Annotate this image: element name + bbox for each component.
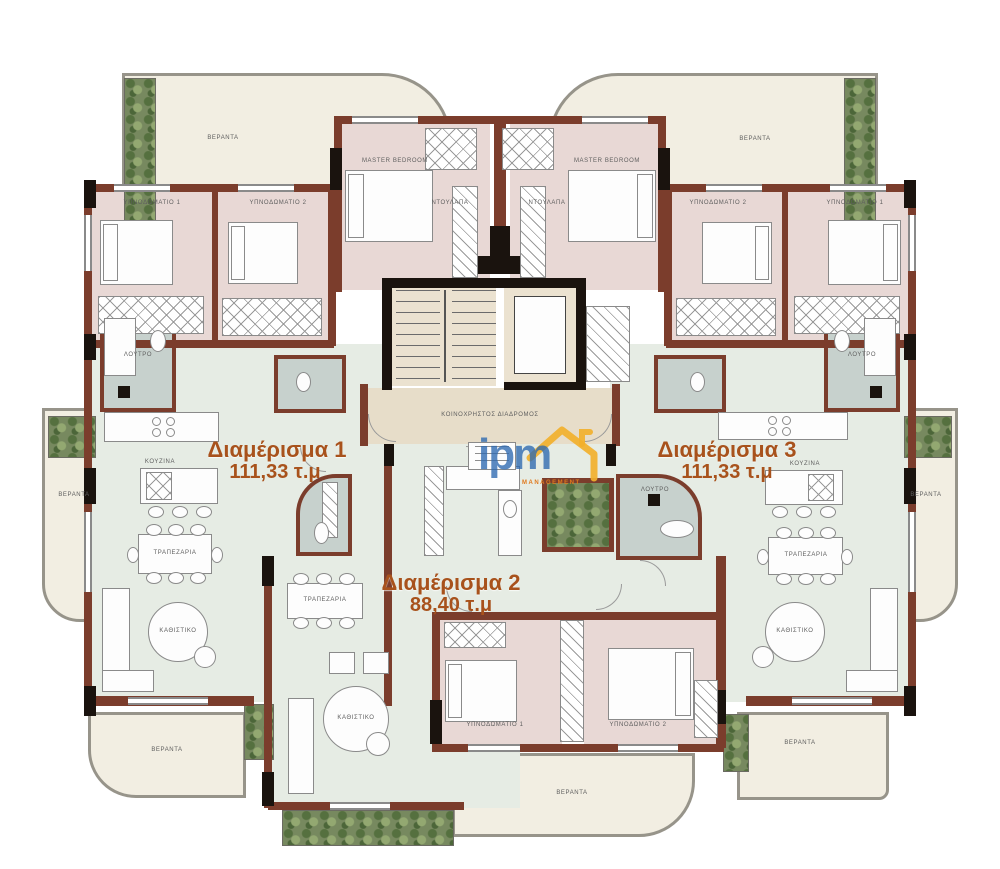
- column: [904, 334, 916, 360]
- room-label-sitting-apt3: ΚΑΘΙΣΤΙΚΟ: [765, 628, 825, 634]
- chair: [776, 573, 792, 585]
- room-label-balcony-left: ΒΕΡΑΝΤΑ: [34, 492, 114, 498]
- chair: [168, 524, 184, 536]
- coffee-table-small: [752, 646, 774, 668]
- room-label-bedroom2-apt1: ΥΠΝΟΔΩΜΑΤΙΟ 2: [228, 200, 328, 206]
- window: [582, 116, 648, 124]
- chair: [757, 549, 769, 565]
- column: [430, 700, 442, 744]
- window: [84, 215, 92, 271]
- apartment-2-name: Διαμέρισμα 2: [346, 570, 556, 596]
- stool: [148, 506, 164, 518]
- room-label-dining-apt2: ΤΡΑΠΕΖΑΡΙΑ: [295, 597, 355, 603]
- column: [904, 468, 916, 504]
- column: [384, 444, 394, 466]
- balcony-bottom-right: [737, 712, 889, 800]
- window: [618, 744, 678, 752]
- stool: [820, 506, 836, 518]
- chair: [798, 527, 814, 539]
- wall: [782, 190, 788, 340]
- core-wall: [382, 278, 392, 390]
- column: [262, 556, 274, 586]
- window: [706, 184, 762, 192]
- room-label-dining-apt3: ΤΡΑΠΕΖΑΡΙΑ: [776, 552, 836, 558]
- armchair: [329, 652, 355, 674]
- window: [830, 184, 886, 192]
- window: [908, 215, 916, 271]
- toilet: [296, 372, 311, 392]
- chair: [776, 527, 792, 539]
- chair: [146, 572, 162, 584]
- bed-pillow: [448, 664, 462, 718]
- room-label-bedroom1-apt3: ΥΠΝΟΔΩΜΑΤΙΟ 1: [805, 200, 905, 206]
- room-label-bath-apt2: ΛΟΥΤΡΟ: [625, 487, 685, 493]
- sink: [118, 386, 130, 398]
- stove-burner: [782, 427, 791, 436]
- ipm-logo: ipm MANAGEMENT: [478, 428, 608, 492]
- room-label-bath-apt1: ΛΟΥΤΡΟ: [108, 352, 168, 358]
- planter-bottom-strip: [282, 810, 454, 846]
- stool: [772, 506, 788, 518]
- room-label-sitting-apt1: ΚΑΘΙΣΤΙΚΟ: [148, 628, 208, 634]
- column: [330, 148, 342, 190]
- chair: [293, 573, 309, 585]
- room-label-bedroom2-apt3: ΥΠΝΟΔΩΜΑΤΙΟ 2: [668, 200, 768, 206]
- sofa: [846, 670, 898, 692]
- bed-pillow: [675, 652, 691, 716]
- logo-subtext: MANAGEMENT: [522, 480, 581, 486]
- stair-flight: [452, 290, 496, 382]
- chair: [146, 524, 162, 536]
- stove-burner: [768, 416, 777, 425]
- window: [468, 744, 520, 752]
- window: [330, 802, 390, 810]
- bed-pillow: [348, 174, 364, 238]
- stove-burner: [166, 417, 175, 426]
- window: [238, 184, 294, 192]
- bed-pillow: [103, 224, 118, 281]
- core-wall: [504, 382, 586, 390]
- room-label-dining-apt1: ΤΡΑΠΕΖΑΡΙΑ: [145, 550, 205, 556]
- wall: [664, 186, 672, 346]
- column: [84, 180, 96, 208]
- room-label-bedroom1-apt2: ΥΠΝΟΔΩΜΑΤΙΟ 1: [445, 722, 545, 728]
- toilet: [314, 522, 329, 544]
- bathtub: [104, 318, 136, 376]
- column: [904, 686, 916, 716]
- column: [262, 772, 274, 806]
- bed-pillow: [231, 226, 245, 280]
- room-label-balcony-bl: ΒΕΡΑΝΤΑ: [127, 747, 207, 753]
- bathtub: [660, 520, 694, 538]
- stove-burner: [152, 417, 161, 426]
- planter-mid-right: [723, 714, 749, 772]
- room-label-bath-apt3: ΛΟΥΤΡΟ: [832, 352, 892, 358]
- chair: [211, 547, 223, 563]
- sink: [648, 494, 660, 506]
- wall: [328, 186, 336, 346]
- stove-burner: [166, 428, 175, 437]
- room-label-bedroom2-apt2: ΥΠΝΟΔΩΜΑΤΙΟ 2: [588, 722, 688, 728]
- room-label-sitting-apt2: ΚΑΘΙΣΤΙΚΟ: [326, 715, 386, 721]
- column: [658, 148, 670, 190]
- room-label-balcony-br: ΒΕΡΑΝΤΑ: [760, 740, 840, 746]
- chair: [190, 524, 206, 536]
- window: [352, 116, 418, 124]
- logo-text: ipm: [478, 430, 550, 480]
- core-wall: [576, 278, 586, 390]
- sofa: [288, 698, 314, 794]
- toilet: [690, 372, 705, 392]
- bed-pillow: [755, 226, 769, 280]
- apartment-2-area: 88,40 τ.μ: [346, 594, 556, 617]
- toilet: [150, 330, 166, 352]
- coffee-table-small: [366, 732, 390, 756]
- floor-plan-canvas: Διαμέρισμα 1 111,33 τ.μ Διαμέρισμα 3 111…: [0, 0, 1000, 869]
- room-label-balcony-bc: ΒΕΡΑΝΤΑ: [532, 790, 612, 796]
- wall: [612, 384, 620, 446]
- apartment-1-area: 111,33 τ.μ: [170, 461, 380, 484]
- island-sink: [146, 472, 172, 500]
- room-label-balcony-right: ΒΕΡΑΝΤΑ: [886, 492, 966, 498]
- wardrobe: [444, 622, 506, 648]
- chair: [841, 549, 853, 565]
- room-label-master-apt1: MASTER BEDROOM: [345, 158, 445, 164]
- wardrobe: [676, 298, 776, 336]
- room-label-terrace-tr: ΒΕΡΑΝΤΑ: [715, 136, 795, 142]
- chair: [127, 547, 139, 563]
- sink: [870, 386, 882, 398]
- bed-pillow: [637, 174, 653, 238]
- chair: [168, 572, 184, 584]
- chair: [820, 573, 836, 585]
- bathtub: [864, 318, 896, 376]
- chair: [798, 573, 814, 585]
- core-wall: [382, 278, 586, 288]
- stove-burner: [152, 428, 161, 437]
- window: [84, 512, 92, 592]
- stool: [796, 506, 812, 518]
- stair-divider: [444, 290, 446, 382]
- wall: [264, 556, 272, 808]
- room-label-bedroom1-apt1: ΥΠΝΟΔΩΜΑΤΙΟ 1: [102, 200, 202, 206]
- stove-burner: [782, 416, 791, 425]
- wardrobe: [586, 306, 630, 382]
- stool: [172, 506, 188, 518]
- room-label-master-apt3: MASTER BEDROOM: [557, 158, 657, 164]
- elevator-car: [514, 296, 566, 374]
- wardrobe: [222, 298, 322, 336]
- window: [792, 697, 872, 705]
- room-label-kitchen-apt3: ΚΟΥΖΙΝΑ: [775, 461, 835, 467]
- apartment-1-name: Διαμέρισμα 1: [172, 437, 382, 463]
- wall: [212, 190, 218, 340]
- toilet: [834, 330, 850, 352]
- window: [114, 184, 170, 192]
- chair: [339, 617, 355, 629]
- coffee-table-small: [194, 646, 216, 668]
- column: [490, 226, 510, 266]
- room-label-wardrobe-left: ΝΤΟΥΛΑΠΑ: [415, 200, 485, 206]
- window: [908, 512, 916, 592]
- chair: [293, 617, 309, 629]
- room-label-wardrobe-right: ΝΤΟΥΛΑΠΑ: [512, 200, 582, 206]
- armchair: [363, 652, 389, 674]
- wardrobe: [694, 680, 718, 738]
- wardrobe: [560, 620, 584, 742]
- column: [84, 468, 96, 504]
- column: [84, 334, 96, 360]
- chair: [316, 617, 332, 629]
- stool: [196, 506, 212, 518]
- bed-pillow: [883, 224, 898, 281]
- column: [904, 180, 916, 208]
- chair: [316, 573, 332, 585]
- chair: [190, 572, 206, 584]
- kitchen-cabinet: [424, 466, 444, 556]
- sofa: [102, 670, 154, 692]
- room-label-terrace-tl: ΒΕΡΑΝΤΑ: [183, 135, 263, 141]
- wardrobe: [502, 128, 554, 170]
- window: [128, 697, 208, 705]
- stove-burner: [768, 427, 777, 436]
- chair: [820, 527, 836, 539]
- sink: [503, 500, 517, 518]
- column: [84, 686, 96, 716]
- room-label-corridor: ΚΟΙΝΟΧΡΗΣΤΟΣ ΔΙΑΔΡΟΜΟΣ: [400, 412, 580, 418]
- apartment-3-name: Διαμέρισμα 3: [622, 437, 832, 463]
- room-label-kitchen-apt1: ΚΟΥΖΙΝΑ: [130, 459, 190, 465]
- stair-flight: [396, 290, 440, 382]
- balcony-bottom-left: [88, 712, 246, 798]
